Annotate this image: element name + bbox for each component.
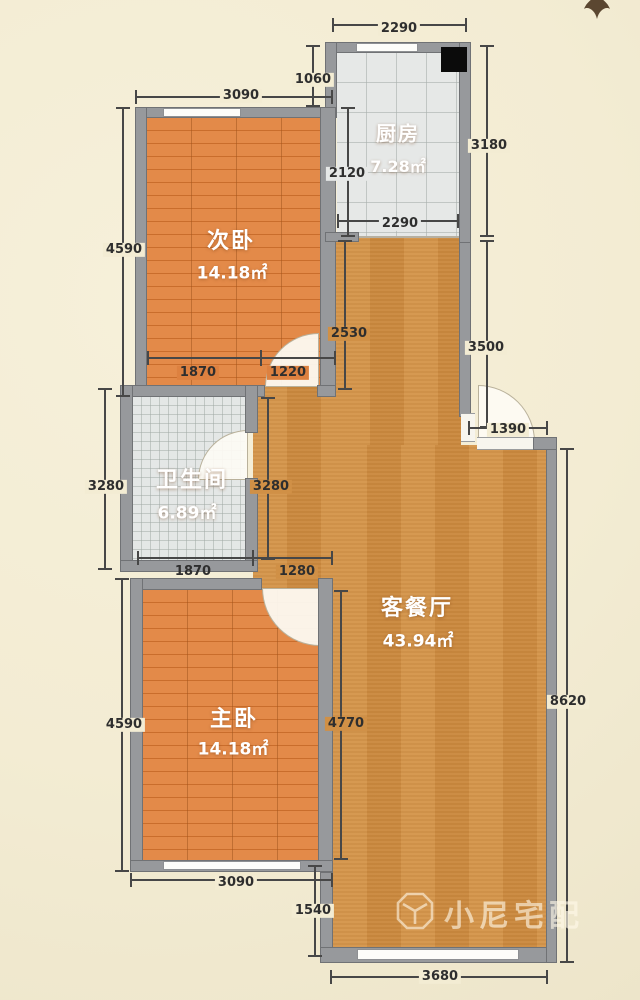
kitchen-label: 厨房 [376, 118, 420, 147]
second-bedroom-label: 次卧 [207, 223, 255, 255]
dimension-label: 3280 [250, 480, 292, 494]
dimension-label: 1870 [172, 565, 214, 579]
master-bedroom-area: 14.18㎡ [198, 735, 269, 760]
dimension-label: 1540 [292, 904, 334, 918]
dimension-label: 3680 [419, 970, 461, 984]
dimension-label: 2530 [328, 327, 370, 341]
second-bedroom-window [163, 108, 241, 117]
living-dining-label: 客餐厅 [381, 590, 453, 622]
dimension-label: 1280 [276, 565, 318, 579]
wall-segment [245, 385, 258, 433]
dimension-tick [252, 550, 254, 566]
watermark-cube-icon [394, 890, 436, 936]
master-bedroom-label: 主卧 [210, 701, 258, 733]
watermark: 小尼宅配 [394, 890, 584, 936]
watermark-text: 小尼宅配 [444, 891, 584, 935]
wall-segment [533, 437, 557, 450]
entry-door-sill [477, 437, 533, 450]
dimension-label: 3090 [215, 876, 257, 890]
dimension-line [137, 557, 333, 559]
dimension-label: 4590 [103, 243, 145, 257]
dimension-label: 3090 [220, 89, 262, 103]
dimension-label: 1220 [267, 366, 309, 380]
dimension-label: 1390 [487, 423, 529, 437]
floor-plan: 2290 1060 3090 3180 2120 2290 4590 2530 … [0, 0, 640, 1000]
kitchen-area: 7.28㎡ [370, 153, 425, 177]
dimension-label: 3280 [85, 480, 127, 494]
dimension-label: 2290 [379, 217, 421, 231]
dimension-label: 8620 [547, 695, 589, 709]
dimension-label: 1060 [292, 73, 334, 87]
dimension-label: 2290 [378, 22, 420, 36]
master-bedroom-window [163, 861, 301, 870]
bathroom-label: 卫生间 [156, 462, 228, 494]
second-bedroom-area: 14.18㎡ [197, 259, 268, 284]
wall-segment [130, 578, 262, 590]
dimension-tick [260, 350, 262, 366]
dimension-label: 4590 [103, 718, 145, 732]
bathroom-area: 6.89㎡ [158, 499, 217, 524]
wall-segment [459, 242, 471, 417]
living-dining-floor-upper [336, 237, 461, 450]
compass-north-icon [578, 0, 616, 24]
dimension-line [486, 240, 488, 428]
dimension-label: 4770 [325, 717, 367, 731]
dimension-label: 2120 [326, 167, 368, 181]
kitchen-flue [441, 47, 467, 72]
living-dining-floor-main [333, 445, 548, 955]
dimension-label: 3500 [465, 341, 507, 355]
living-room-window [357, 949, 519, 960]
living-dining-area: 43.94㎡ [383, 627, 454, 652]
wall-segment [317, 385, 336, 397]
dimension-line [344, 240, 346, 390]
dimension-label: 3180 [468, 139, 510, 153]
wall-segment [120, 385, 265, 397]
dimension-label: 1870 [177, 366, 219, 380]
kitchen-window [356, 43, 418, 52]
dimension-line [147, 357, 336, 359]
